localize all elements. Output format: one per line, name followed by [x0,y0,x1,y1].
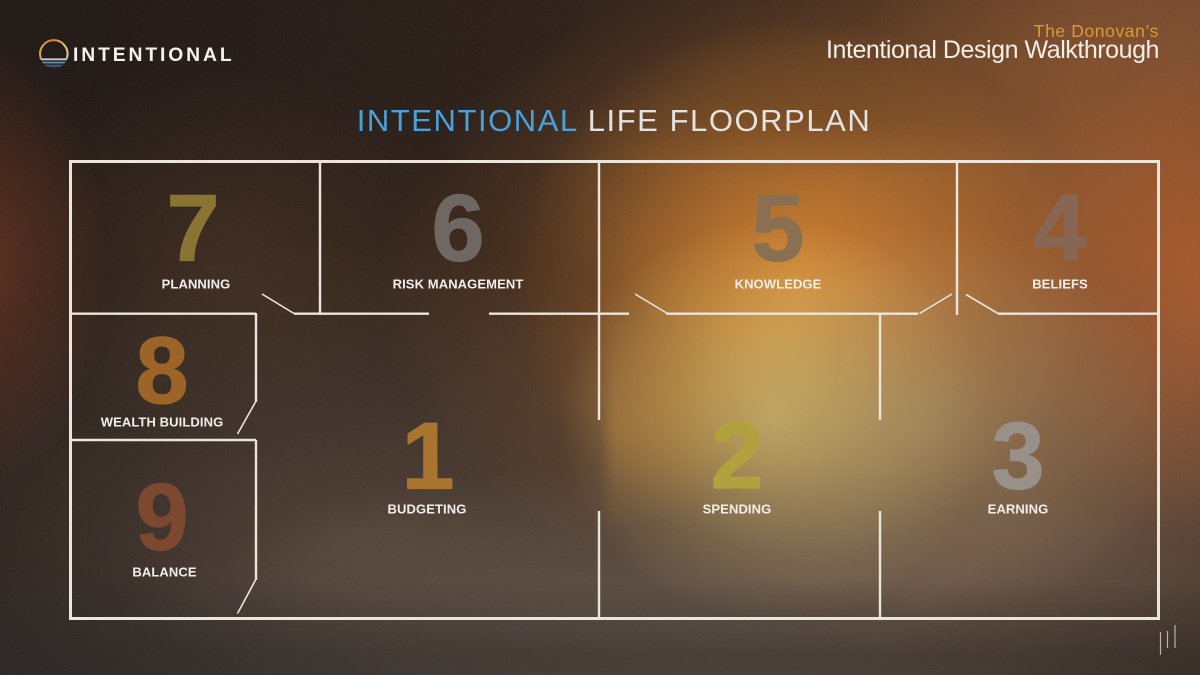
svg-text:SPENDING: SPENDING [703,502,772,517]
svg-text:3: 3 [992,404,1045,510]
svg-text:1: 1 [402,404,455,510]
svg-text:KNOWLEDGE: KNOWLEDGE [735,277,822,292]
svg-text:RISK MANAGEMENT: RISK MANAGEMENT [393,277,524,292]
svg-text:PLANNING: PLANNING [162,277,231,292]
svg-text:2: 2 [711,403,764,509]
svg-text:9: 9 [136,465,189,571]
svg-text:EARNING: EARNING [988,502,1049,517]
svg-text:7: 7 [167,176,220,282]
svg-text:BUDGETING: BUDGETING [388,502,467,517]
svg-text:BELIEFS: BELIEFS [1032,277,1088,292]
svg-text:4: 4 [1034,176,1087,282]
svg-text:6: 6 [432,176,485,282]
svg-text:5: 5 [752,176,805,282]
svg-text:WEALTH BUILDING: WEALTH BUILDING [101,415,224,430]
svg-text:8: 8 [136,318,189,424]
svg-text:BALANCE: BALANCE [132,565,196,580]
